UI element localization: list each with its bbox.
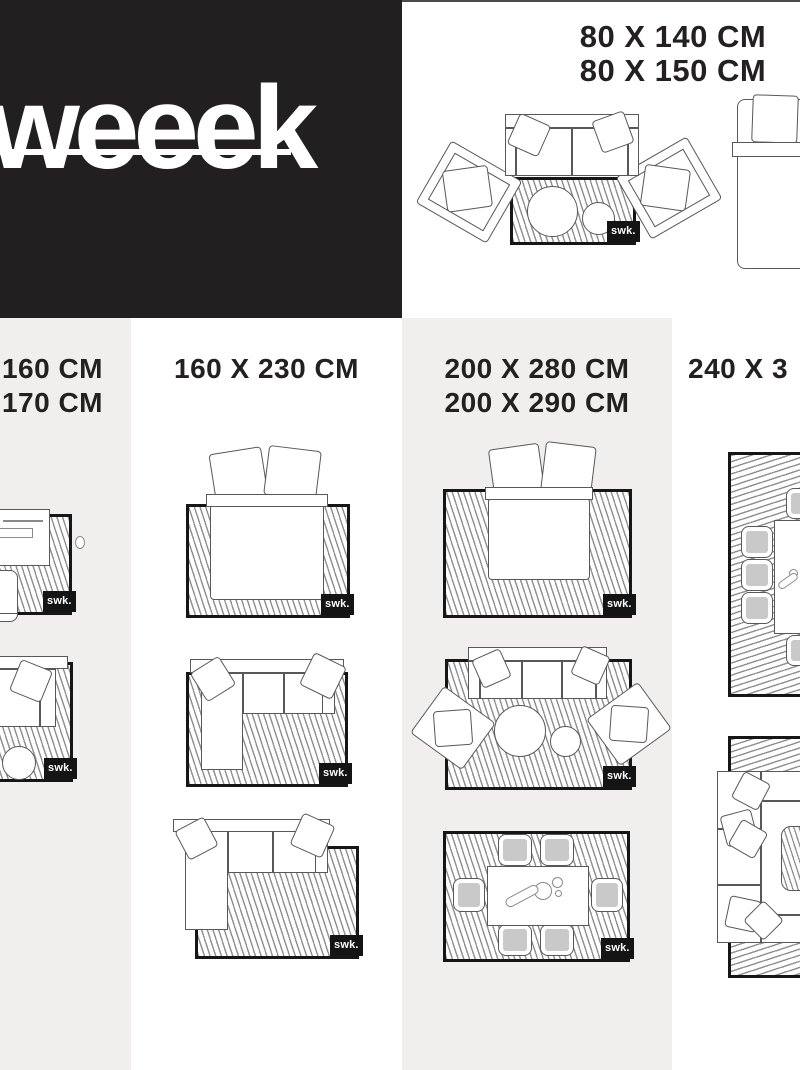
chair-seat bbox=[746, 597, 768, 619]
size-label-col1-line2: 170 CM bbox=[0, 386, 103, 420]
double-bed bbox=[210, 504, 324, 600]
rug-brand-tag: swk. bbox=[321, 594, 354, 615]
rug-brand-tag: swk. bbox=[43, 591, 76, 612]
rug-brand-tag: swk. bbox=[603, 594, 636, 615]
size-label-80x140: 80 X 140 CM bbox=[545, 20, 800, 54]
dining-chair bbox=[498, 834, 532, 866]
plate-icon-small bbox=[552, 877, 563, 888]
chair-seat bbox=[791, 640, 800, 661]
size-label-200x290: 200 X 290 CM bbox=[402, 386, 672, 420]
dining-chair bbox=[498, 924, 532, 956]
coffee-table bbox=[781, 826, 800, 891]
coffee-table-large bbox=[527, 186, 578, 237]
chair-seat bbox=[746, 564, 768, 586]
armchair-cushion bbox=[442, 165, 493, 213]
dining-chair bbox=[540, 924, 574, 956]
bed-headboard bbox=[206, 494, 328, 507]
dining-chair bbox=[591, 878, 623, 912]
chair-seat bbox=[596, 883, 618, 907]
armchair-cushion bbox=[640, 164, 691, 212]
baguette-icon bbox=[777, 571, 800, 590]
top-edge-line bbox=[402, 0, 800, 2]
double-bed bbox=[488, 498, 590, 580]
dining-table bbox=[774, 520, 800, 634]
bed-headboard bbox=[485, 487, 593, 500]
dining-chair bbox=[786, 488, 800, 519]
bed-headboard bbox=[732, 142, 800, 157]
desk bbox=[0, 509, 50, 566]
dining-chair bbox=[741, 559, 773, 591]
rug-brand-tag: swk. bbox=[319, 763, 352, 784]
chair-seat bbox=[503, 929, 527, 951]
side-table-round bbox=[2, 746, 36, 780]
dining-chair bbox=[540, 834, 574, 866]
chair-back-line bbox=[0, 613, 17, 615]
sofa-seat-divider bbox=[521, 660, 523, 698]
bed-pillow bbox=[263, 445, 322, 501]
sofa-seat-divider bbox=[272, 832, 274, 872]
chair-seat bbox=[791, 493, 800, 514]
armchair-cushion bbox=[433, 709, 473, 748]
armchair-cushion bbox=[609, 705, 649, 744]
dining-chair bbox=[741, 592, 773, 624]
sofa-seat-divider bbox=[571, 127, 573, 175]
plate-icon-tiny bbox=[555, 890, 562, 897]
rug-brand-tag: swk. bbox=[603, 766, 636, 787]
sofa-seat-divider bbox=[718, 884, 760, 886]
dining-table bbox=[487, 866, 589, 926]
brand-logo-text: weeek bbox=[0, 60, 312, 196]
sofa-seat-divider bbox=[561, 660, 563, 698]
logo-crossbar bbox=[0, 149, 291, 155]
chair-seat bbox=[458, 883, 480, 907]
desk-pen bbox=[3, 520, 43, 522]
size-label-160x230: 160 X 230 CM bbox=[131, 352, 402, 386]
chair-seat bbox=[503, 839, 527, 861]
rug-brand-tag: swk. bbox=[601, 938, 634, 959]
sofa-seat-divider bbox=[283, 674, 285, 713]
dining-chair bbox=[741, 526, 773, 558]
coffee-table-small bbox=[550, 726, 581, 757]
size-label-col1-line1: 160 CM bbox=[0, 352, 103, 386]
bed-pillow bbox=[751, 94, 799, 144]
chair-seat bbox=[746, 531, 768, 553]
dining-chair bbox=[453, 878, 485, 912]
size-label-80x150: 80 X 150 CM bbox=[545, 54, 800, 88]
chair-seat bbox=[545, 839, 569, 861]
size-label-200x280: 200 X 280 CM bbox=[402, 352, 672, 386]
size-label-240: 240 X 3 bbox=[688, 352, 788, 386]
coffee-table-large bbox=[494, 705, 546, 757]
chair-seat bbox=[545, 929, 569, 951]
rug-size-guide: weeek 80 X 140 CM 80 X 150 CM swk. 160 C… bbox=[0, 0, 800, 1070]
sofa-arm-line bbox=[760, 800, 800, 802]
dining-chair bbox=[786, 635, 800, 666]
rug-brand-tag: swk. bbox=[607, 221, 640, 242]
brand-logo-block: weeek bbox=[0, 0, 402, 318]
desk-chair bbox=[0, 570, 18, 622]
rug-brand-tag: swk. bbox=[44, 758, 77, 779]
desk-keyboard bbox=[0, 528, 33, 538]
desk-mouse bbox=[75, 536, 85, 549]
rug-brand-tag: swk. bbox=[330, 935, 363, 956]
